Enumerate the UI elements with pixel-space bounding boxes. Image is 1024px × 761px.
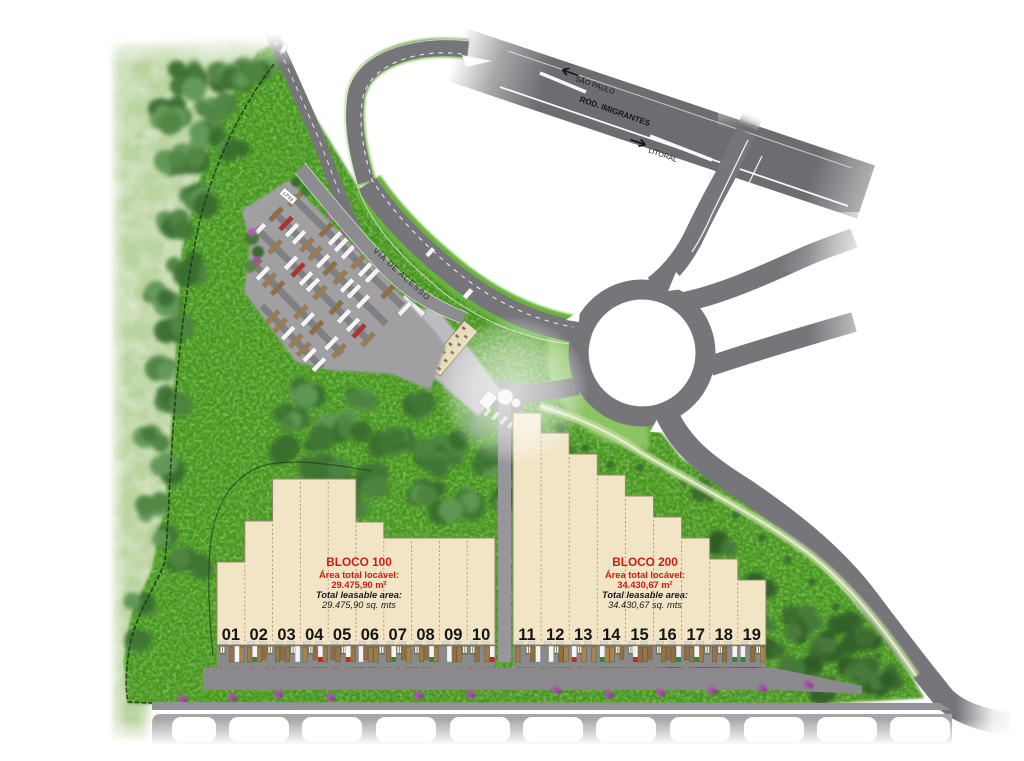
svg-text:BLOCO 100: BLOCO 100 [326,555,392,569]
svg-text:13: 13 [574,626,592,644]
svg-text:17: 17 [687,626,705,644]
svg-text:10: 10 [472,626,490,644]
svg-text:08: 08 [416,626,434,644]
svg-text:18: 18 [715,626,733,644]
svg-text:34.430,67 sq. mts: 34.430,67 sq. mts [608,600,682,610]
svg-text:BLOCO 200: BLOCO 200 [612,555,678,569]
svg-text:05: 05 [333,626,351,644]
svg-text:15: 15 [630,626,648,644]
svg-text:Área total locável:: Área total locável: [605,570,685,580]
svg-text:12: 12 [546,626,564,644]
svg-text:03: 03 [277,626,295,644]
svg-text:09: 09 [444,626,462,644]
svg-text:06: 06 [361,626,379,644]
svg-text:Área total locável:: Área total locável: [319,570,399,580]
svg-text:16: 16 [658,626,676,644]
svg-text:04: 04 [305,626,324,644]
svg-text:29.475,90 sq. mts: 29.475,90 sq. mts [321,600,396,610]
svg-text:34.430,67 m²: 34.430,67 m² [617,580,672,590]
svg-text:07: 07 [389,626,407,644]
svg-text:11: 11 [518,626,535,644]
svg-text:02: 02 [250,626,268,644]
svg-text:19: 19 [743,626,761,644]
svg-text:Total leasable area:: Total leasable area: [602,590,688,600]
svg-text:Total leasable area:: Total leasable area: [316,590,402,600]
svg-text:29.475,90 m²: 29.475,90 m² [331,580,386,590]
svg-text:01: 01 [222,626,240,644]
svg-text:14: 14 [602,626,621,644]
